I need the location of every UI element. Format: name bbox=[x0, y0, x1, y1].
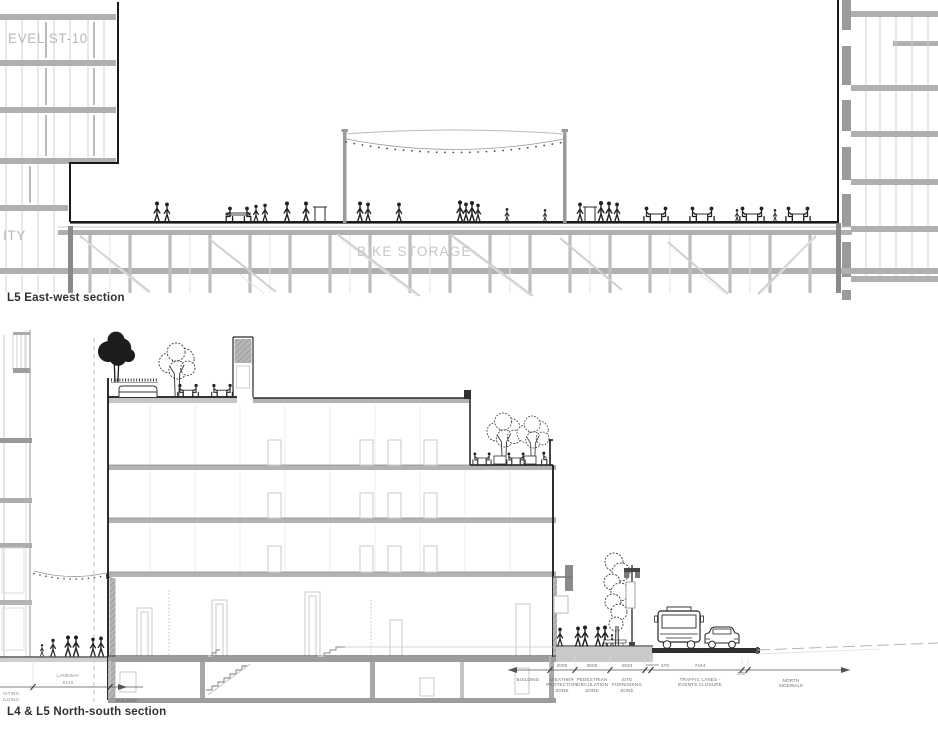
zone-dim-2000: 2000 bbox=[547, 663, 577, 669]
string-lights-canopy bbox=[342, 129, 569, 223]
basement-slab bbox=[108, 698, 556, 703]
deck-people bbox=[154, 200, 810, 222]
zone-dim-275: 275 bbox=[737, 671, 745, 677]
string-light-bulbs bbox=[346, 142, 564, 153]
amenity-label: ITY bbox=[3, 228, 26, 243]
street-light bbox=[624, 565, 640, 646]
car bbox=[705, 627, 739, 648]
wall-sign bbox=[565, 565, 573, 591]
road-surface bbox=[652, 648, 760, 653]
laneway-label: LANEWAY bbox=[44, 673, 92, 679]
zone-label-traffic-lanes: TRAFFIC LANES - EVENTS CLOSURE bbox=[672, 677, 728, 689]
canopy-post-right bbox=[563, 131, 567, 223]
terrace-sofa bbox=[119, 386, 157, 397]
north-sidewalk-ground-line bbox=[758, 643, 938, 650]
upper-terrace bbox=[473, 413, 549, 464]
bus bbox=[655, 607, 704, 648]
tree-bench bbox=[604, 640, 626, 643]
basement-stair bbox=[206, 666, 248, 690]
laneway-dim: 6140 bbox=[44, 680, 92, 686]
existing-building-label: ISTING ILDING bbox=[3, 691, 19, 703]
zone-label-north-sidewalk: NORTH SIDEWALK bbox=[766, 678, 816, 690]
zone-dim-2933: 2933 bbox=[611, 663, 643, 669]
level-st10-label: EVEL ST-10 bbox=[8, 31, 88, 46]
zone-dim-7444: 7444 bbox=[684, 663, 716, 669]
roof-terrace bbox=[98, 332, 232, 397]
street-scene bbox=[553, 553, 938, 662]
existing-building-section bbox=[0, 330, 108, 662]
right-building-section bbox=[838, 0, 938, 300]
bottom-section-caption: L4 & L5 North-south section bbox=[7, 706, 166, 718]
laneway-string-light-wire bbox=[34, 571, 106, 577]
architectural-sections-sheet: EVEL ST-10 ITY BIKE STORAGE L5 East-west… bbox=[0, 0, 938, 735]
canopy-post-left bbox=[343, 131, 347, 223]
zone-label-site-furnishing: SITE FURNISHING ZONE bbox=[605, 677, 649, 695]
bike-storage-label: BIKE STORAGE bbox=[357, 244, 472, 259]
l4-l5-north-south-section-drawing bbox=[0, 330, 938, 703]
zone-dim-3000: 3000 bbox=[577, 663, 607, 669]
zone-dim-270: 270 bbox=[661, 663, 669, 669]
building-slab-label: BUILDING bbox=[116, 698, 137, 703]
section-drawings-linework bbox=[0, 0, 938, 735]
laneway-scene bbox=[34, 571, 112, 656]
top-section-caption: L5 East-west section bbox=[7, 292, 125, 304]
